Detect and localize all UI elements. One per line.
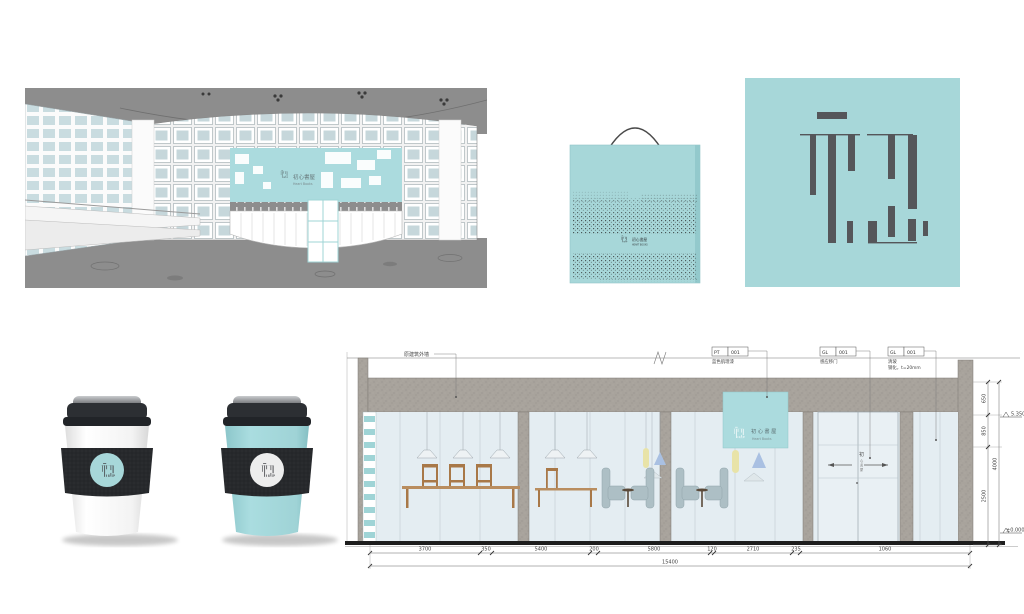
hanging-sign: 初心書屋 Heart Books	[723, 392, 788, 448]
render-sign-subtitle: Heart Books	[293, 182, 313, 186]
callout-gl1-num: 001	[839, 350, 848, 356]
callout-pt-desc: 蓝色肌理漆	[712, 358, 735, 365]
coffee-cup-teal	[221, 396, 338, 546]
design-presentation-board: 初心書屋 Heart Books	[0, 0, 1024, 614]
break-line-icon	[654, 352, 666, 364]
cup-lid	[223, 396, 311, 426]
dim-9: 1060	[879, 547, 892, 553]
callout-gl2-num: 001	[907, 350, 916, 356]
dim-5: 5800	[648, 547, 661, 553]
dim-4: 200	[589, 547, 599, 553]
cup-shadow	[62, 534, 178, 546]
level-bottom-text: ±0.000	[1006, 528, 1024, 534]
dim-right-1: 650	[982, 394, 988, 404]
elevation-drawing: 初心書屋 Heart Books 初 心 書 屋	[340, 340, 1024, 585]
level-marker-bottom: ±0.000	[1000, 528, 1024, 534]
callout-gl2-code: GL	[890, 350, 897, 356]
dim-right-2: 850	[982, 426, 988, 436]
hanging-sign-text-en: Heart Books	[752, 437, 772, 441]
hanging-sign-text-cn: 初心書屋	[751, 427, 778, 435]
bag-logo-text-en: HEART BOOKS	[632, 244, 648, 247]
render-display-tower	[308, 200, 338, 262]
callout-pt-code: PT	[714, 350, 720, 356]
dim-3: 5400	[535, 547, 548, 553]
cup-badge	[250, 453, 284, 487]
dim-right-3: 2500	[982, 490, 988, 503]
logo-panel-background	[745, 78, 960, 287]
floor-line	[345, 541, 1005, 545]
sliding-door: 初 心 書 屋	[818, 412, 898, 542]
shopping-bag-mockup: 初心書屋 HEART BOOKS	[560, 95, 710, 295]
concrete-beam	[368, 378, 960, 412]
dim-8: 235	[791, 547, 801, 553]
dim-right-total: 4000	[993, 458, 999, 471]
dim-7: 2710	[747, 547, 760, 553]
callout-gl2-desc1: 清玻	[888, 358, 897, 365]
coffee-cup-white	[61, 396, 178, 546]
dim-6: 120	[707, 547, 717, 553]
dimension-row-bottom: 3700 350 5400 200 5800 120 2710 235 1060…	[368, 545, 972, 569]
dim-2: 350	[481, 547, 491, 553]
callout-pt-num: 001	[731, 350, 740, 356]
interior-render: 初心書屋 Heart Books	[25, 88, 487, 288]
svg-text:原建筑外墙: 原建筑外墙	[404, 351, 429, 358]
callout-gl2-desc2: 钢化，t=20mm	[888, 364, 921, 371]
level-top-text: 5.350	[1011, 412, 1024, 418]
render-pilaster-right	[439, 120, 461, 240]
door-text-1: 初	[859, 451, 864, 458]
door-text-3: 書	[860, 463, 863, 468]
logo-panel	[745, 78, 960, 287]
dim-total: 15400	[662, 560, 678, 566]
right-end-column	[958, 360, 973, 544]
dim-1: 3700	[419, 547, 432, 553]
render-sign-band: 初心書屋 Heart Books	[230, 148, 402, 202]
slat-shelf-strip	[363, 412, 376, 542]
render-sign-title: 初心書屋	[293, 173, 316, 181]
callout-gl1-code: GL	[822, 350, 829, 356]
cup-badge	[90, 453, 124, 487]
cup-lid	[63, 396, 151, 426]
callout-gl1-desc: 感应移门	[820, 358, 838, 365]
bag-logo-text-cn: 初心書屋	[632, 237, 647, 242]
level-marker-top: 5.350	[1000, 412, 1024, 418]
dimension-row-right: 650 850 2500 4000 5.350 ±0.000	[973, 380, 1024, 547]
coffee-cup-mockups	[25, 385, 355, 560]
cup-shadow	[222, 534, 338, 546]
